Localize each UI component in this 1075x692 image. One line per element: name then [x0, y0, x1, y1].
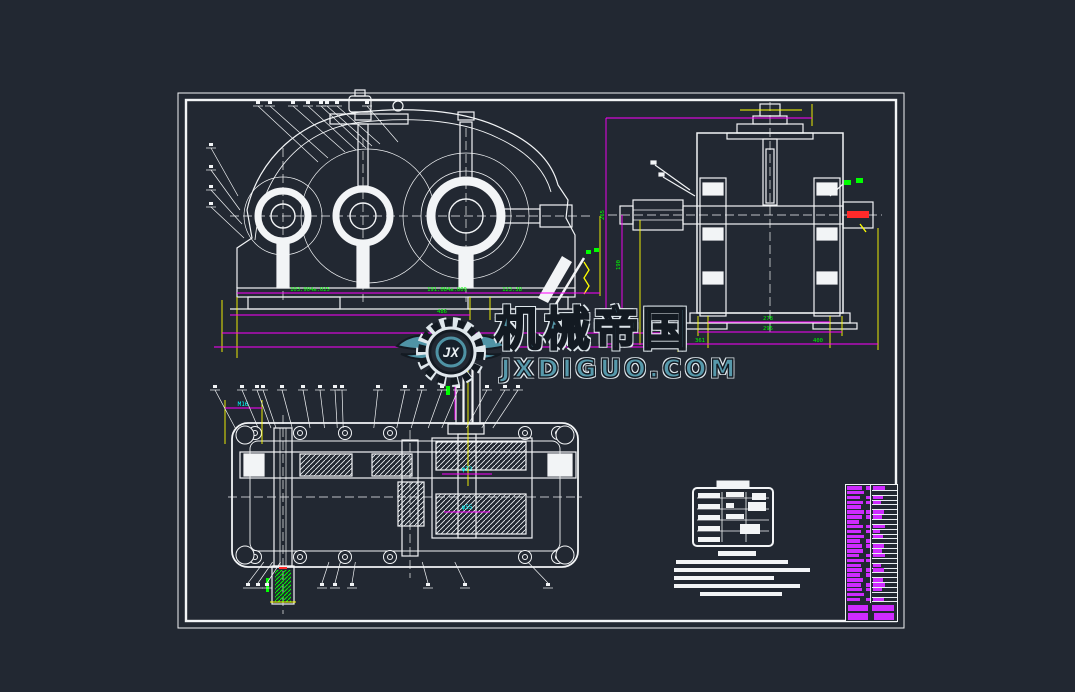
plan-view[interactable]: [228, 368, 582, 614]
dim-total1: 486: [437, 309, 447, 315]
callout-balloon: [503, 385, 507, 388]
section-arrow: [538, 248, 599, 304]
side-view[interactable]: [608, 102, 882, 332]
keyway-highlight: [847, 211, 869, 218]
drawing-sheet: 103.904±.025 191.084±.009 123.38 486 640…: [0, 0, 1075, 692]
dim-width3: 361: [695, 338, 705, 344]
callout-balloon: [516, 385, 520, 388]
dim-width1: 278: [763, 316, 773, 322]
sheet-border: [178, 93, 904, 628]
callout-balloon: [325, 101, 329, 104]
callout-balloon: [333, 385, 337, 388]
callout-balloon: [255, 385, 259, 388]
callout-balloon: [440, 385, 444, 388]
dim-bore2: φ55: [462, 504, 473, 511]
callout-balloon: [420, 385, 424, 388]
plan-view-dimensions: φ72 φ55 M16: [225, 356, 492, 602]
callout-balloon: [485, 385, 489, 388]
technical-notes: [674, 551, 810, 596]
callout-balloon: [213, 385, 217, 388]
callout-balloon: [209, 143, 213, 146]
dim-bore1: φ72: [462, 466, 473, 473]
dim-total2: 640: [448, 327, 458, 333]
dim-width4: 400: [813, 338, 823, 344]
dim-span1: 103.904±.025: [290, 287, 330, 293]
callout-balloon: [335, 101, 339, 104]
callout-balloon: [333, 583, 337, 586]
dim-span2: 191.084±.009: [427, 287, 467, 293]
callout-balloon: [280, 385, 284, 388]
callout-balloon: [318, 385, 322, 388]
gear-parameter-table[interactable]: [693, 481, 773, 546]
callout-balloon: [320, 583, 324, 586]
callout-balloon: [365, 101, 369, 104]
callout-balloon: [209, 165, 213, 168]
callout-balloon: [209, 185, 213, 188]
callout-balloon: [301, 385, 305, 388]
dim-span3: 123.38: [502, 287, 522, 293]
callout-balloon: [376, 385, 380, 388]
dim-height1: 265: [600, 210, 606, 220]
callout-balloon: [209, 202, 213, 205]
dim-total3: 663: [451, 341, 461, 347]
callout-balloon: [456, 385, 460, 388]
callout-balloon: [319, 101, 323, 104]
callout-balloon: [265, 583, 269, 586]
callout-balloon: [240, 385, 244, 388]
callout-balloon: [340, 385, 344, 388]
callout-balloon: [291, 101, 295, 104]
callout-balloon: [403, 385, 407, 388]
callout-balloon: [350, 583, 354, 586]
dim-height2: 190: [616, 260, 622, 270]
front-view[interactable]: [230, 90, 594, 309]
cad-canvas[interactable]: 103.904±.025 191.084±.009 123.38 486 640…: [0, 0, 1075, 692]
callout-balloon: [306, 101, 310, 104]
callout-balloon: [246, 583, 250, 586]
callout-balloon: [546, 583, 550, 586]
callout-balloon: [256, 583, 260, 586]
callout-balloon: [268, 101, 272, 104]
dim-width2: 295: [763, 326, 773, 332]
parts-list-table[interactable]: [845, 484, 898, 622]
callout-balloon: [463, 583, 467, 586]
callout-balloon: [261, 385, 265, 388]
callout-balloon: [256, 101, 260, 104]
callout-balloon: [426, 583, 430, 586]
side-view-marks: [844, 178, 869, 232]
